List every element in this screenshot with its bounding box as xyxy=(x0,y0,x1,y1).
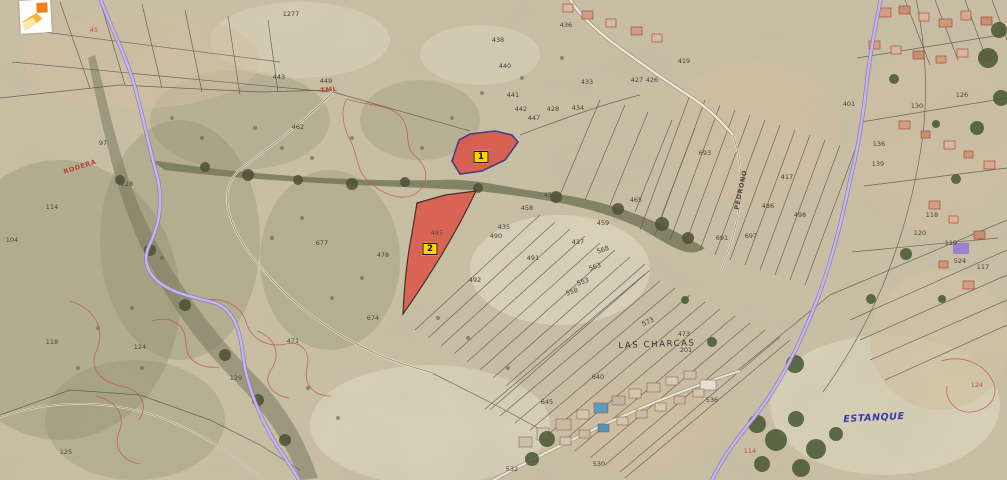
parcel-number: 128 xyxy=(121,181,133,188)
parcel-number: 129 xyxy=(230,375,242,382)
parcel-number: 532 xyxy=(506,466,518,473)
parcel-number: 440 xyxy=(499,63,511,70)
parcel-number: 119 xyxy=(945,240,957,247)
parcel-number: 524 xyxy=(954,258,966,265)
parcel-number: 419 xyxy=(678,58,690,65)
parcel-number: 563 xyxy=(588,262,602,272)
parcel-number: 435 xyxy=(498,224,510,231)
parcel-number: 697 xyxy=(745,233,757,240)
parcel-number: 465 xyxy=(630,197,642,204)
parcel-number: 693 xyxy=(699,150,711,157)
parcel-number: 120 xyxy=(914,230,926,237)
parcel-number: 498 xyxy=(794,212,806,219)
parcel-number: 124 xyxy=(971,382,983,389)
parcel-number: 1277 xyxy=(283,11,300,18)
provider-logo xyxy=(19,0,52,34)
parcel-number: 490 xyxy=(490,233,502,240)
parcel-number: 674 xyxy=(367,315,379,322)
parcel-number: 536 xyxy=(706,397,718,404)
labels-layer: 1277443449462438436440441442447434433428… xyxy=(0,0,1007,480)
parcel-number: 645 xyxy=(541,399,553,406)
parcel-number: 447 xyxy=(528,115,540,122)
parcel-number: 691 xyxy=(716,235,728,242)
parcel-number: 136 xyxy=(873,141,885,148)
parcel-number: 456 xyxy=(544,192,556,199)
parcel-number: 486 xyxy=(762,203,774,210)
parcel-number: 485 xyxy=(431,230,443,237)
parcel-marker-1[interactable]: 1 xyxy=(474,151,489,163)
parcel-number: 118 xyxy=(46,339,58,346)
parcel-number: 428 xyxy=(547,106,559,113)
parcel-marker-2[interactable]: 2 xyxy=(423,243,438,255)
parcel-number: 459 xyxy=(597,220,609,227)
road-label: TML xyxy=(320,86,337,94)
parcel-number: 125 xyxy=(60,449,72,456)
parcel-number: 433 xyxy=(581,79,593,86)
parcel-number: 45 xyxy=(90,27,98,34)
parcel-number: 436 xyxy=(560,22,572,29)
parcel-number: 438 xyxy=(492,37,504,44)
parcel-number: 568 xyxy=(596,245,610,255)
road-label: PEDRONO xyxy=(734,170,749,211)
parcel-number: 437 xyxy=(572,239,584,246)
parcel-number: 427 xyxy=(631,77,643,84)
parcel-number: 117 xyxy=(977,264,989,271)
parcel-number: 640 xyxy=(592,374,604,381)
parcel-number: 443 xyxy=(273,74,285,81)
parcel-number: 442 xyxy=(515,106,527,113)
parcel-number: 114 xyxy=(744,448,756,455)
parcel-number: 139 xyxy=(872,161,884,168)
parcel-number: 114 xyxy=(46,204,58,211)
parcel-number: 458 xyxy=(521,205,533,212)
parcel-number: 401 xyxy=(843,101,855,108)
water-label: ESTANQUE xyxy=(843,411,905,425)
parcel-number: 97 xyxy=(99,140,107,147)
parcel-number: 449 xyxy=(320,78,332,85)
parcel-number: 492 xyxy=(469,277,481,284)
parcel-number: 126 xyxy=(956,92,968,99)
parcel-number: 553 xyxy=(576,277,590,287)
parcel-number: 573 xyxy=(641,316,655,327)
parcel-number: 558 xyxy=(565,287,579,297)
parcel-number: 124 xyxy=(134,344,146,351)
parcel-number: 471 xyxy=(287,338,299,345)
parcel-number: 118 xyxy=(926,212,938,219)
parcel-number: 130 xyxy=(911,103,923,110)
parcel-number: 417 xyxy=(781,174,793,181)
parcel-number: 491 xyxy=(527,255,539,262)
parcel-number: 462 xyxy=(292,124,304,131)
parcel-number: 533 xyxy=(527,458,539,465)
parcel-number: 104 xyxy=(6,237,18,244)
road-label: RODERA xyxy=(63,159,97,176)
parcel-number: 434 xyxy=(572,105,584,112)
parcel-number: 441 xyxy=(507,92,519,99)
parcel-number: 473 xyxy=(678,331,690,338)
map-viewport[interactable]: 1277443449462438436440441442447434433428… xyxy=(0,0,1007,480)
parcel-number: 426 xyxy=(646,77,658,84)
parcel-number: 677 xyxy=(316,240,328,247)
logo-orange-square xyxy=(36,2,48,13)
parcel-number: 530 xyxy=(593,461,605,468)
parcel-number: 478 xyxy=(377,252,389,259)
